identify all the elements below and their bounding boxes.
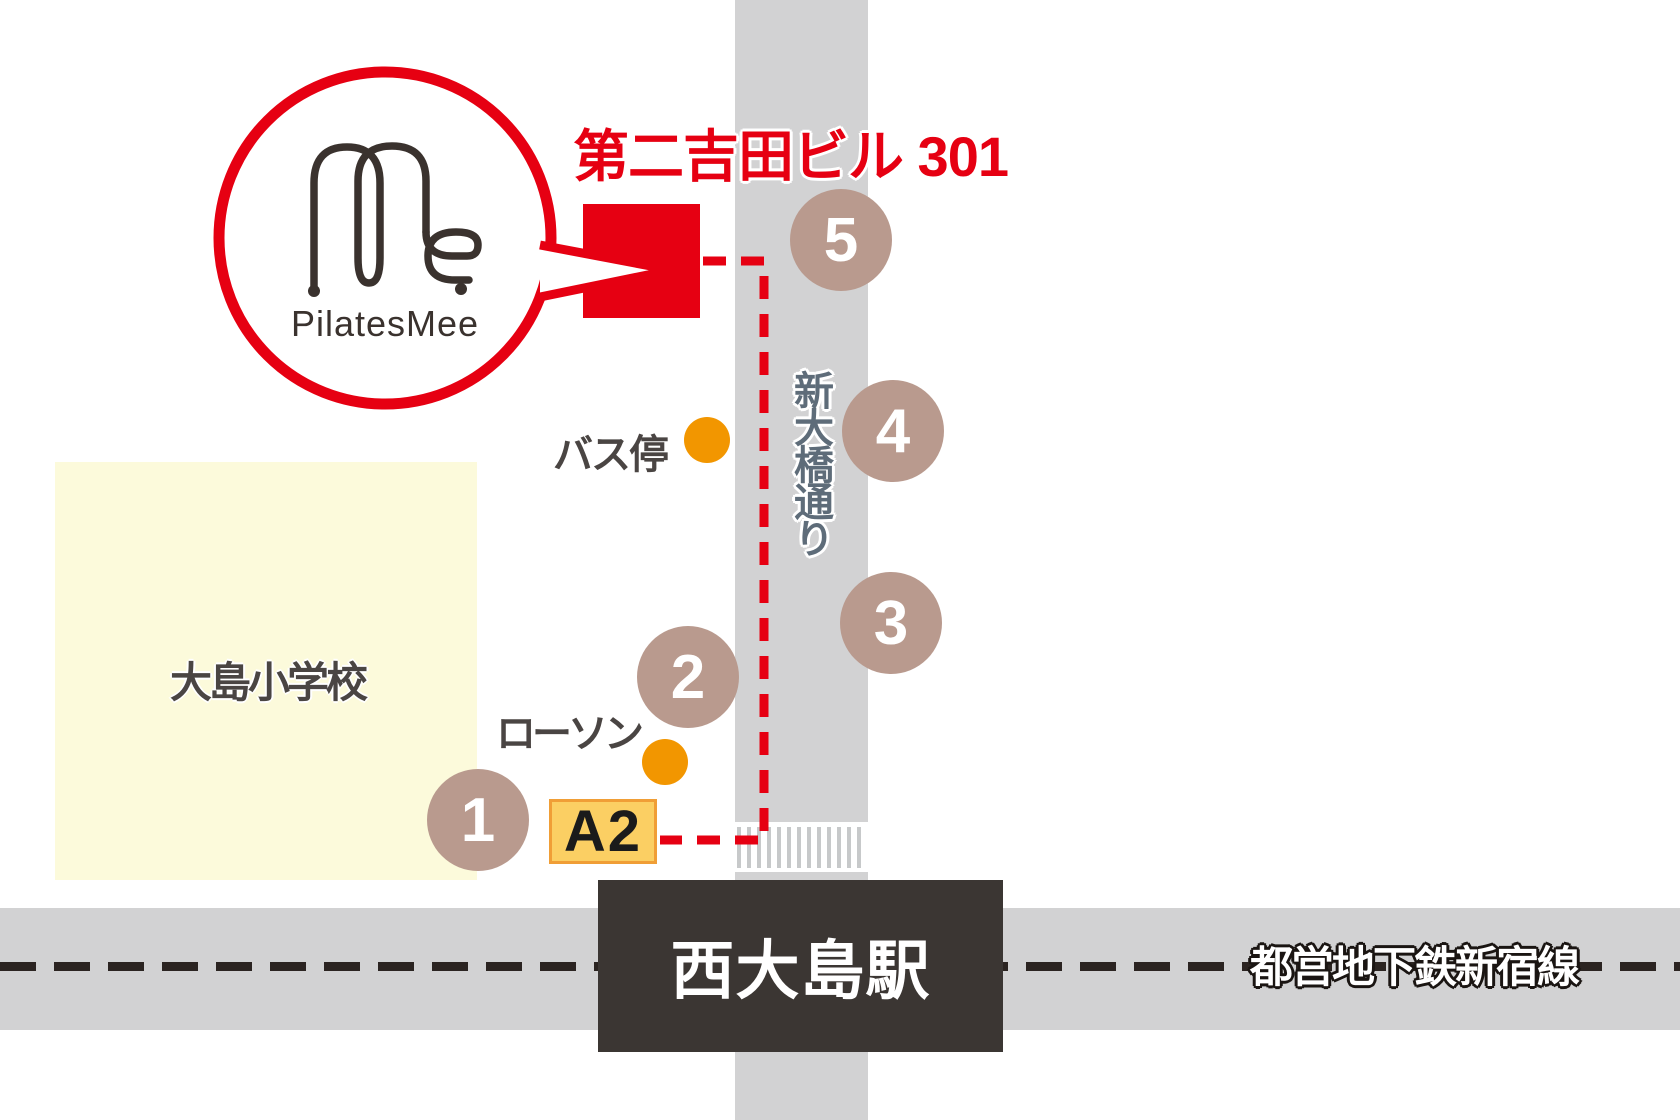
brand-wordmark: PilatesMee xyxy=(235,303,535,345)
destination-building-label: 第二吉田ビル 301 xyxy=(573,112,1008,193)
convenience-store-marker-icon xyxy=(642,739,688,785)
station-exit-a2-badge: A2 xyxy=(549,799,657,864)
route-point-3: 3 xyxy=(840,572,942,674)
route-point-5: 5 xyxy=(790,189,892,291)
bus-stop-label: バス停 xyxy=(553,422,667,480)
logo-balloon-circle xyxy=(219,72,551,404)
bus-stop-marker-icon xyxy=(684,417,730,463)
access-map: 大島小学校 西大島駅 都営地下鉄新宿線 新大橋通り 第二吉田ビル 301 Pil… xyxy=(0,0,1680,1120)
school-label: 大島小学校 xyxy=(170,649,365,710)
route-point-4: 4 xyxy=(842,380,944,482)
convenience-store-label: ローソン xyxy=(496,701,640,759)
route-point-2: 2 xyxy=(637,626,739,728)
logo-exclamation-dot xyxy=(308,285,320,297)
logo-balloon-pointer xyxy=(540,245,672,297)
route-point-1: 1 xyxy=(427,769,529,871)
logo-period-dot xyxy=(455,283,467,295)
